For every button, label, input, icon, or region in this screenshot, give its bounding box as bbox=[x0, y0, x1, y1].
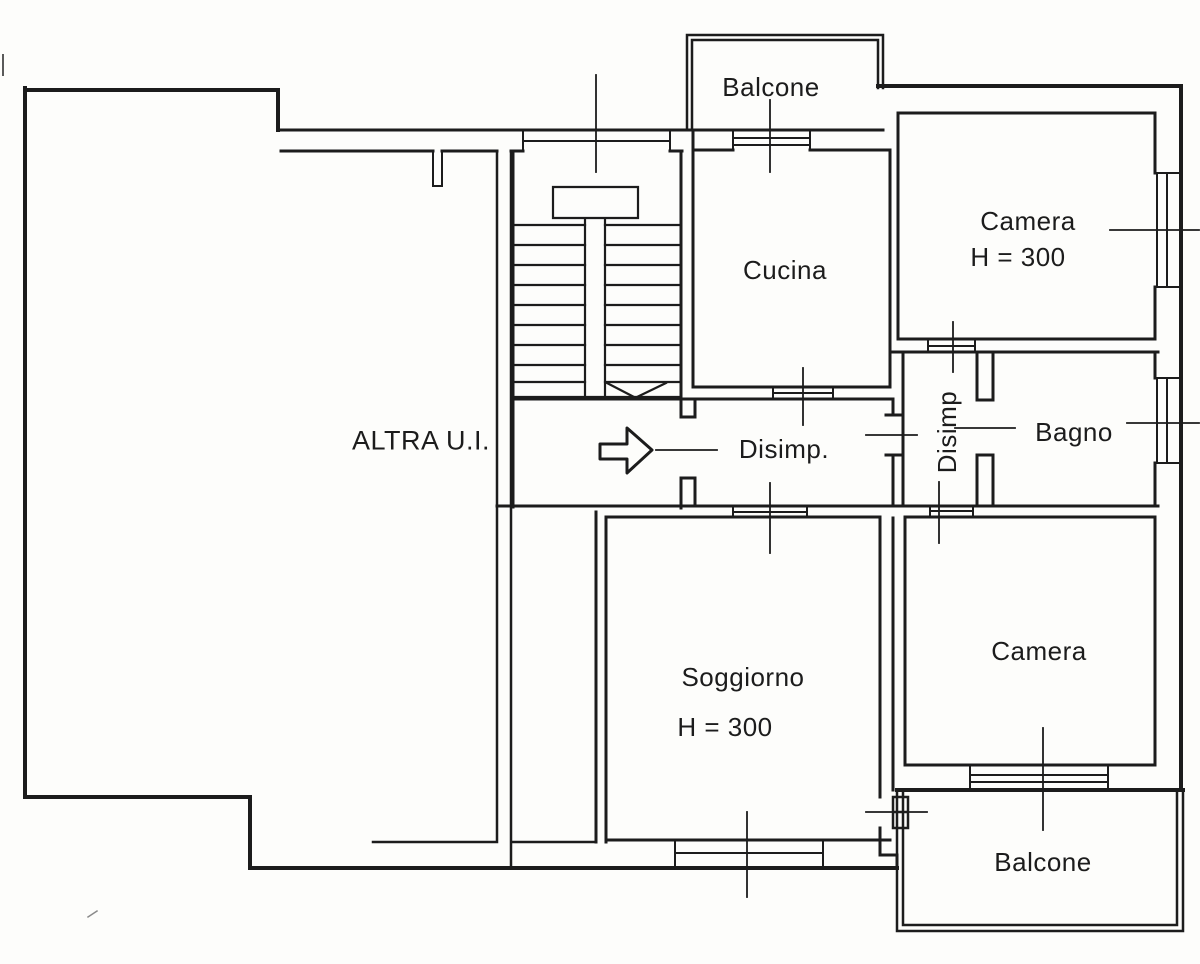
room-height-camera-1: H = 300 bbox=[970, 242, 1065, 272]
balcony-outlines bbox=[687, 35, 1183, 931]
room-label-disimp-main: Disimp. bbox=[739, 434, 829, 464]
room-label-soggiorno: Soggiorno bbox=[681, 662, 804, 692]
scan-artifact-speck bbox=[88, 911, 97, 917]
wall-stub bbox=[433, 151, 442, 186]
room-label-camera-2: Camera bbox=[991, 636, 1087, 666]
door-disimp-small-camera2 bbox=[930, 506, 973, 517]
staircase bbox=[513, 187, 680, 397]
room-label-camera-1: Camera bbox=[980, 206, 1076, 236]
wall-stairwell bbox=[513, 151, 681, 508]
stair-direction-arrow bbox=[607, 383, 666, 397]
room-label-cucina: Cucina bbox=[743, 255, 827, 285]
windows-and-sills bbox=[523, 130, 1181, 868]
entry-arrow bbox=[600, 428, 652, 473]
window-soggiorno bbox=[675, 840, 823, 868]
floor-plan-svg: Balcone Cucina Camera H = 300 ALTRA U.I.… bbox=[0, 0, 1200, 964]
floor-plan-page: Balcone Cucina Camera H = 300 ALTRA U.I.… bbox=[0, 0, 1200, 964]
room-labels: Balcone Cucina Camera H = 300 ALTRA U.I.… bbox=[352, 72, 1113, 877]
window-camera2 bbox=[970, 765, 1108, 790]
scan-artifacts bbox=[3, 55, 97, 917]
stair-treads bbox=[513, 225, 680, 397]
room-label-disimp-small: Disimp bbox=[932, 391, 962, 473]
wall-disimp-main bbox=[681, 352, 903, 506]
room-label-balcone-top: Balcone bbox=[722, 72, 819, 102]
door-cucina-balcony bbox=[733, 130, 810, 150]
wall-corridor bbox=[373, 151, 596, 866]
room-height-soggiorno: H = 300 bbox=[677, 712, 772, 742]
room-label-altra-ui: ALTRA U.I. bbox=[352, 425, 490, 455]
room-label-bagno: Bagno bbox=[1035, 417, 1113, 447]
window-camera1-disimp-small bbox=[928, 339, 975, 352]
outer-wall-left-unit bbox=[25, 88, 897, 868]
outer-walls bbox=[25, 86, 1183, 868]
outer-wall-top-right bbox=[878, 86, 1181, 790]
room-label-balcone-bottom: Balcone bbox=[994, 847, 1091, 877]
window-bagno-right bbox=[1155, 378, 1181, 463]
